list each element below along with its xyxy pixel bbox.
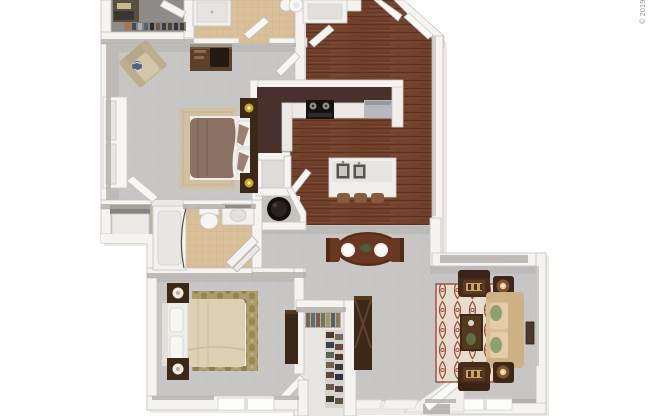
svg-text:© 2019: © 2019 — [638, 0, 647, 24]
